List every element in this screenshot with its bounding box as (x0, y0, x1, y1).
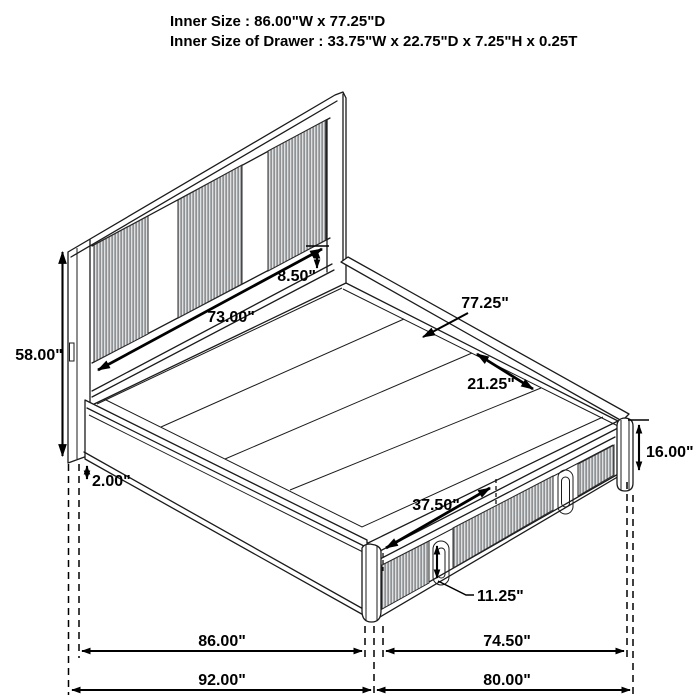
near-corner-leg (362, 544, 381, 622)
title-line-1: Inner Size : 86.00"W x 77.25"D (170, 13, 385, 30)
dim-label-77-25: 77.25" (461, 295, 509, 312)
diagram-canvas: 58.00" 8.50" 73.00" 77.25" 21.25" 16.00"… (0, 0, 700, 700)
dim-label-37-50: 37.50" (412, 497, 460, 514)
dim-label-74-50: 74.50" (483, 633, 531, 650)
dim-label-11-25: 11.25" (477, 588, 524, 605)
right-corner-leg (617, 418, 633, 491)
dim-label-21-25: 21.25" (467, 376, 515, 393)
bed-dimension-diagram: 58.00" 8.50" 73.00" 77.25" 21.25" 16.00"… (0, 0, 700, 700)
dim-label-2: 2.00" (92, 473, 131, 490)
dim-label-86: 86.00" (198, 633, 246, 650)
dim-label-58: 58.00" (15, 347, 63, 364)
dim-label-80: 80.00" (483, 672, 531, 689)
dim-label-73: 73.00" (207, 309, 255, 326)
title-line-2: Inner Size of Drawer : 33.75"W x 22.75"D… (170, 33, 577, 50)
dim-label-16: 16.00" (646, 444, 694, 461)
dim-label-92: 92.00" (198, 672, 246, 689)
